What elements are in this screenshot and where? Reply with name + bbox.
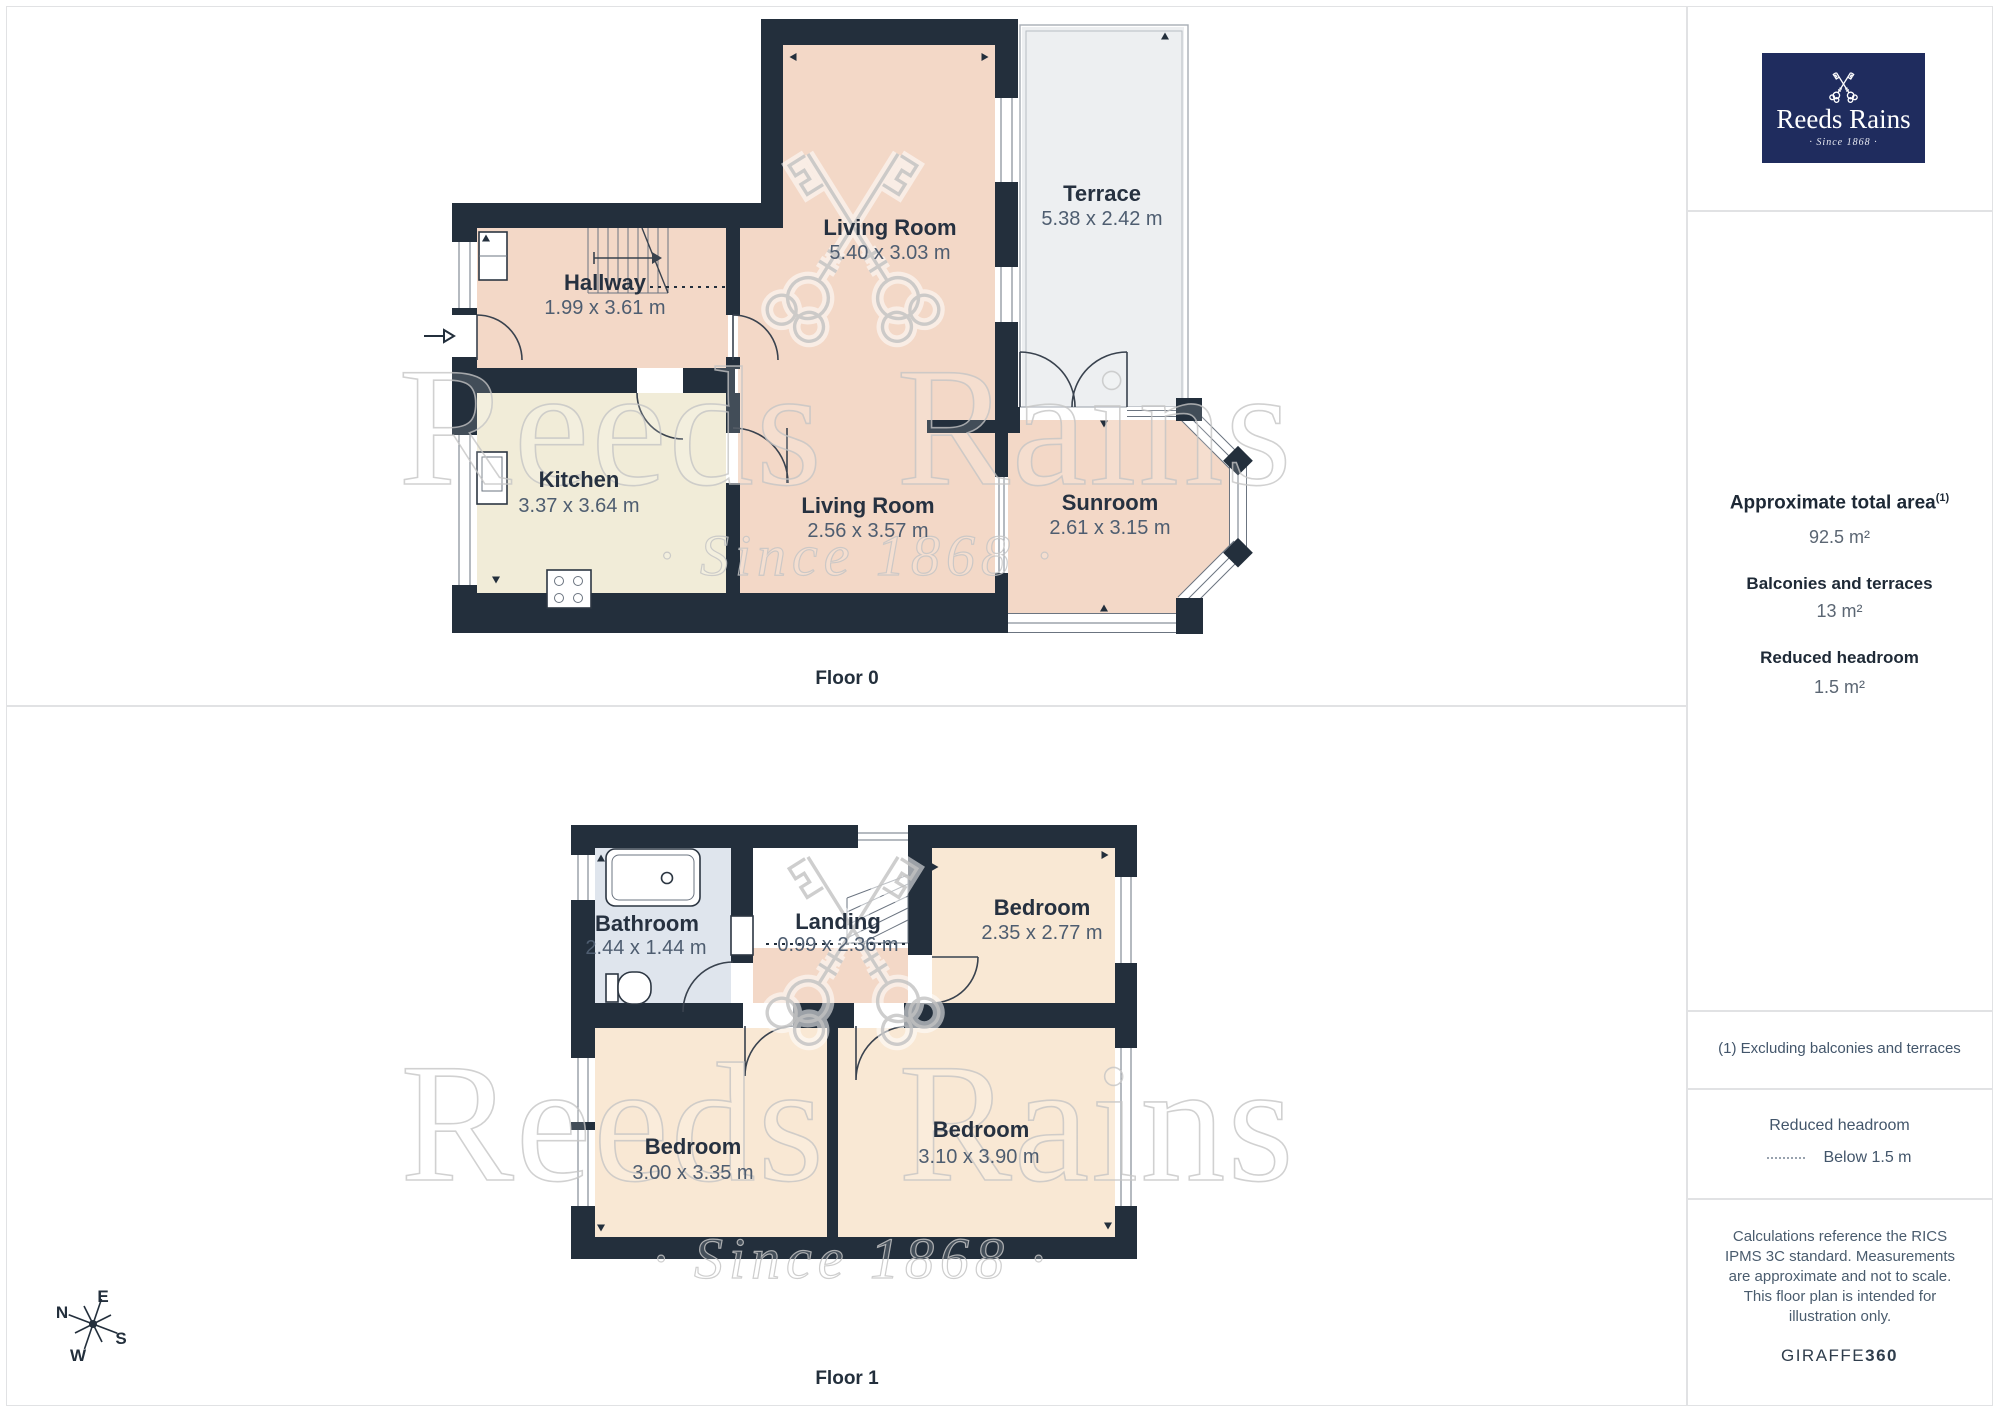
giraffe-text: GIRAFFE: [1781, 1346, 1865, 1365]
room-label-bedroom-3: Bedroom: [933, 1117, 1030, 1142]
disclaimer-text: Calculations reference the RICS IPMS 3C …: [1716, 1227, 1964, 1327]
room-dims-living-top: 5.40 x 3.03 m: [829, 242, 950, 264]
room-label-living-bottom: Living Room: [801, 493, 934, 518]
legend-title: Reduced headroom: [1686, 1117, 1993, 1135]
room-label-terrace: Terrace: [1063, 181, 1141, 206]
room-dims-bedroom-1: 2.35 x 2.77 m: [981, 922, 1102, 944]
compass-s: S: [115, 1329, 126, 1348]
sidebar-section-divider: [1686, 1198, 1993, 1200]
compass-w: W: [70, 1346, 87, 1365]
room-dims-sunroom: 2.61 x 3.15 m: [1049, 517, 1170, 539]
room-dims-hallway: 1.99 x 3.61 m: [544, 297, 665, 319]
legend-item-label: Below 1.5 m: [1823, 1149, 1911, 1167]
compass-e: E: [97, 1287, 108, 1306]
watermark-title-floor1: Reeds Rains: [400, 1029, 1295, 1217]
room-label-bedroom-2: Bedroom: [645, 1134, 742, 1159]
floor0-caption: Floor 0: [647, 668, 1047, 690]
compass-n: N: [56, 1303, 68, 1322]
total-area-footnote-marker: (1): [1936, 492, 1949, 504]
total-area-label: Approximate total area: [1730, 492, 1936, 513]
room-label-living-top: Living Room: [823, 215, 956, 240]
legend-row: Below 1.5 m: [1686, 1149, 1993, 1167]
sidebar-section-divider: [1686, 1088, 1993, 1090]
reeds-rains-logo: Reeds Rains · Since 1868 ·: [1762, 53, 1925, 163]
floor1-caption: Floor 1: [647, 1368, 1047, 1390]
floor0-plan: Reeds Rains · Since 1868 · Hallway 1.99 …: [398, 0, 1293, 634]
total-area-value: 92.5 m²: [1686, 527, 1993, 548]
reduced-headroom-label: Reduced headroom: [1686, 648, 1993, 668]
floorplan-canvas: Reeds Rains · Since 1868 · Hallway 1.99 …: [0, 0, 1686, 1414]
room-label-kitchen: Kitchen: [539, 467, 620, 492]
giraffe-360-text: 360: [1865, 1346, 1898, 1365]
balconies-label: Balconies and terraces: [1686, 574, 1993, 594]
room-label-hallway: Hallway: [564, 270, 647, 295]
room-label-bathroom: Bathroom: [595, 911, 699, 936]
sidebar-divider: [1686, 6, 1688, 1406]
floorplan-page: Reeds Rains · Since 1868 · Hallway 1.99 …: [0, 0, 2000, 1414]
giraffe360-brand: GIRAFFE360: [1686, 1346, 1993, 1366]
reduced-headroom-dotted-line: [1767, 1157, 1805, 1159]
room-dims-bathroom: 2.44 x 1.44 m: [585, 937, 706, 959]
room-dims-terrace: 5.38 x 2.42 m: [1041, 208, 1162, 230]
sidebar-section-divider: [1686, 210, 1993, 212]
room-dims-kitchen: 3.37 x 3.64 m: [518, 495, 639, 517]
room-dims-bedroom-3: 3.10 x 3.90 m: [918, 1146, 1039, 1168]
total-area-heading: Approximate total area(1): [1686, 492, 1993, 514]
footnote: (1) Excluding balconies and terraces: [1686, 1040, 1993, 1057]
logo-tagline: · Since 1868 ·: [1762, 137, 1925, 148]
logo-title: Reeds Rains: [1762, 104, 1925, 135]
room-label-landing: Landing: [795, 909, 881, 934]
balconies-value: 13 m²: [1686, 601, 1993, 622]
room-dims-bedroom-2: 3.00 x 3.35 m: [632, 1162, 753, 1184]
room-label-bedroom-1: Bedroom: [994, 895, 1091, 920]
compass: N E S W: [56, 1287, 127, 1365]
sidebar-section-divider: [1686, 1010, 1993, 1012]
room-label-sunroom: Sunroom: [1062, 490, 1159, 515]
floor1-plan: Reeds Rains · Since 1868 · Bathroom 2.44…: [400, 825, 1295, 1291]
reduced-headroom-value: 1.5 m²: [1686, 677, 1993, 698]
room-dims-living-bottom: 2.56 x 3.57 m: [807, 520, 928, 542]
room-dims-landing: 0.99 x 2.36 m: [777, 934, 898, 956]
watermark-tagline-floor1: · Since 1868 ·: [653, 1226, 1051, 1291]
